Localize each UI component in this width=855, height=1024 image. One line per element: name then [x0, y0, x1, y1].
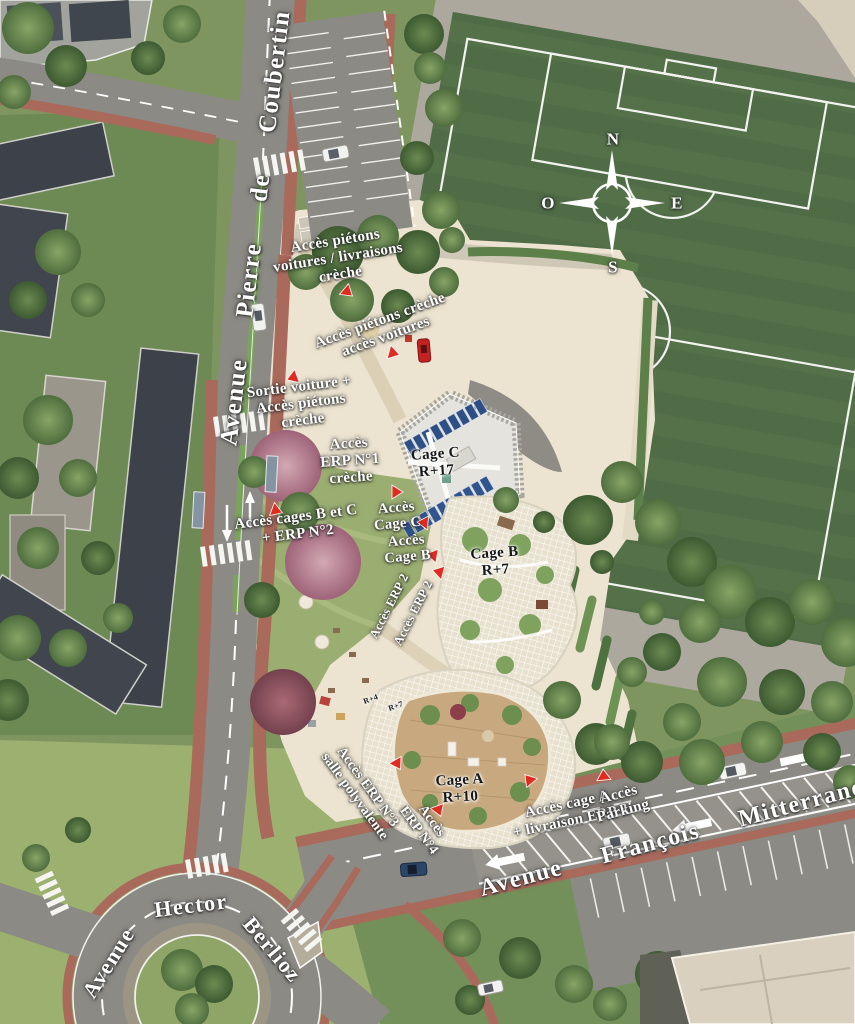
- pink-tree: [285, 524, 361, 600]
- car: [251, 303, 267, 331]
- bus-shelter: [192, 492, 205, 529]
- red-tree: [250, 669, 316, 735]
- site-plan-map: [0, 0, 855, 1024]
- car: [417, 339, 431, 363]
- car: [400, 862, 427, 877]
- site-plan: Avenue Pierre de Coubertin Accès piétons…: [0, 0, 855, 1024]
- building-cage-b: [438, 496, 577, 695]
- bus-shelter: [265, 456, 278, 493]
